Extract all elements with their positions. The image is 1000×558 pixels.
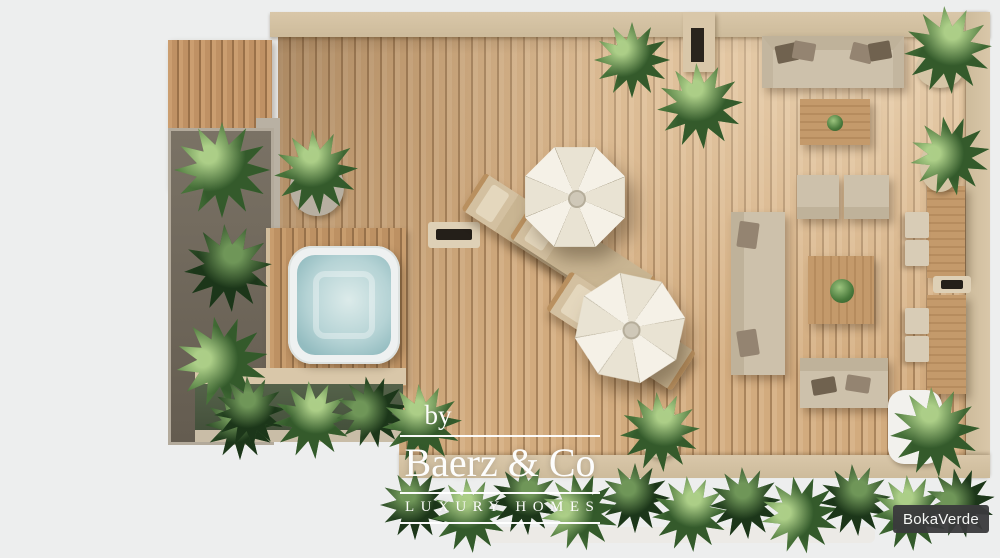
watermark-rule <box>400 492 600 494</box>
wall-vent-slot <box>691 28 704 62</box>
fire-trough-slot <box>941 280 963 289</box>
hot-tub <box>288 246 400 364</box>
sofa-pillow <box>792 40 817 62</box>
patio-umbrella <box>564 262 697 395</box>
watermark-tagline: LUXURY HOMES <box>400 499 600 516</box>
terrace-floor-plan-render: by Baerz & Co LUXURY HOMES BokaVerde <box>0 0 1000 558</box>
fire-trough <box>428 222 480 248</box>
bar-chair <box>905 336 929 362</box>
table-plant <box>830 279 854 303</box>
bar-chair <box>905 240 929 266</box>
dining-table <box>808 256 874 324</box>
fire-trough-right <box>933 276 971 293</box>
table-plant <box>827 115 843 131</box>
watermark-brand-name: Baerz & Co <box>400 442 600 484</box>
bar-table <box>927 186 965 278</box>
bar-chair <box>905 212 929 238</box>
bar-table <box>927 295 966 394</box>
watermark-prefix: by <box>338 402 538 429</box>
watermark-logo: by Baerz & Co LUXURY HOMES <box>400 402 600 529</box>
bokaverde-logo-badge: BokaVerde <box>893 505 989 533</box>
armchair <box>844 175 889 219</box>
sofa-pillow <box>736 221 759 250</box>
armchair <box>797 175 839 219</box>
sofa-pillow <box>736 329 760 358</box>
fire-trough-slot <box>436 229 472 240</box>
sofa-pillow <box>868 40 893 62</box>
watermark-rule <box>400 522 600 524</box>
coffee-table <box>800 99 870 145</box>
patio-umbrella <box>521 143 629 251</box>
hot-tub-water <box>297 255 391 355</box>
umbrella-pole-hub <box>568 190 586 208</box>
watermark-rule <box>400 435 600 437</box>
bar-chair <box>905 308 929 334</box>
